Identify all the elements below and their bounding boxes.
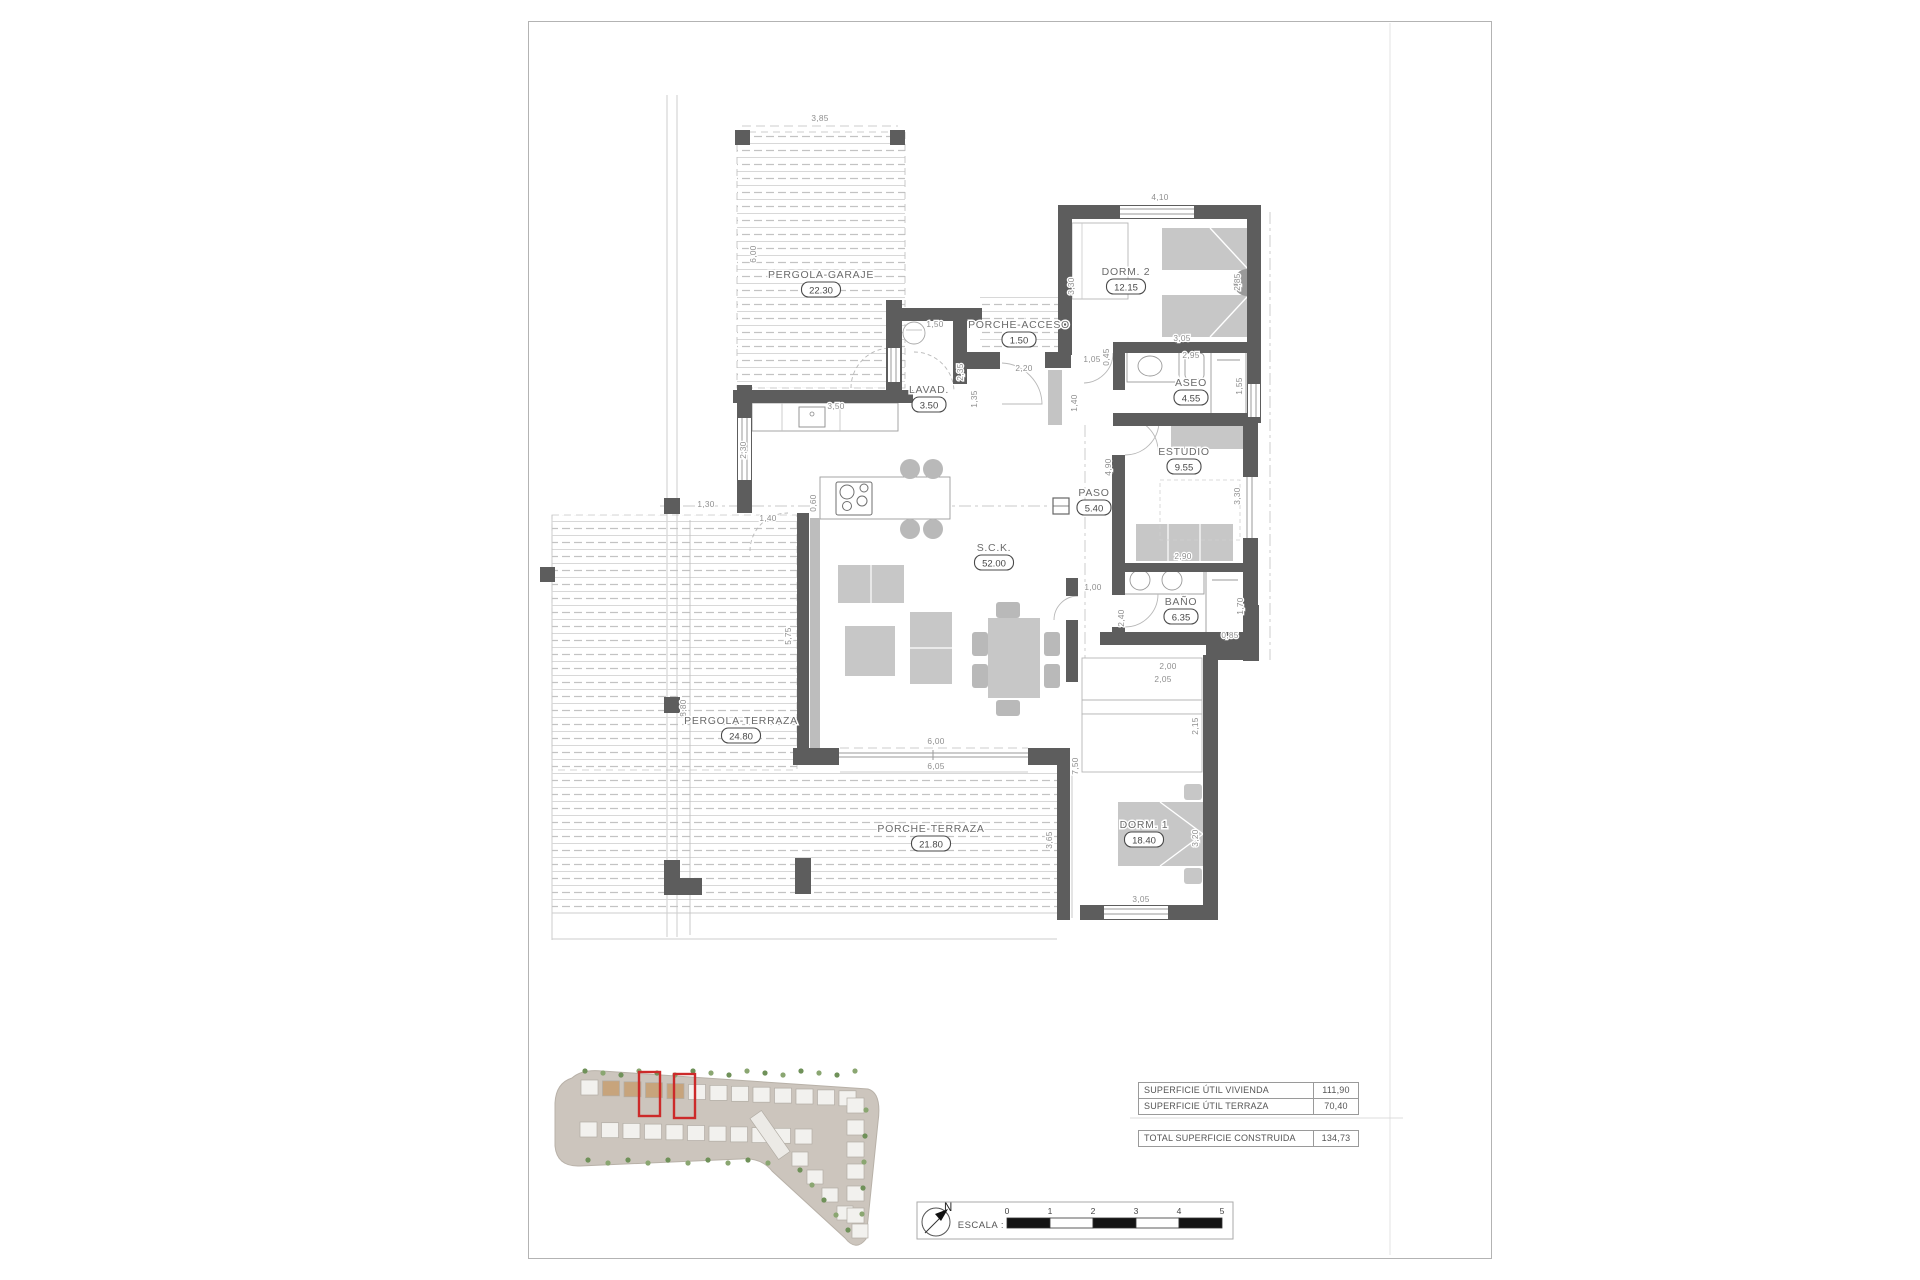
site-house [792,1152,808,1166]
room-name-label: BAÑO [1165,595,1198,608]
dimension-label: 2,00 [1159,661,1176,671]
room-area-label: 1.50 [1010,336,1029,347]
site-tree [816,1070,821,1075]
site-house [796,1089,813,1104]
dimension-label: 3,50 [827,401,844,411]
scale-bar-segment [1050,1218,1093,1228]
dimension-label: 3,20 [1190,829,1200,846]
room-area-label: 6.35 [1172,613,1191,624]
site-house [775,1088,792,1103]
site-house [807,1170,823,1184]
site-house [847,1142,864,1157]
site-tree [861,1159,866,1164]
dorm2-window [1120,206,1194,218]
lavad-window [888,348,900,382]
dimension-label: 1,40 [1069,394,1079,411]
dimension-label: 0,60 [808,494,818,511]
dimension-label: 1,50 [926,319,943,329]
dimension-label: 3,85 [811,113,828,123]
room-area-label: 4.55 [1182,394,1201,405]
dimension-label: 1,30 [697,499,714,509]
scale-tick-label: 0 [1005,1206,1010,1216]
hall-cabinet [1048,370,1062,425]
dimension-label: 1,40 [759,513,776,523]
site-house [852,1224,868,1238]
paso-shaft-symbol [1053,498,1069,514]
room-area-label: 3.50 [920,401,939,412]
site-tree [582,1068,587,1073]
site-tree [860,1185,865,1190]
scale-tick-label: 3 [1134,1206,1139,1216]
site-house [795,1129,812,1144]
table-row: SUPERFICIE ÚTIL VIVIENDA 111,90 [1139,1083,1358,1098]
room-area-label: 24.80 [729,732,753,743]
site-tree [745,1157,750,1162]
table-cell-label: SUPERFICIE ÚTIL VIVIENDA [1139,1083,1314,1098]
site-house [753,1087,770,1102]
site-house [689,1085,706,1100]
site-house [847,1098,864,1113]
site-house [581,1080,598,1095]
site-house [709,1126,726,1141]
dimension-label: 1,55 [1234,377,1244,394]
site-tree [625,1157,630,1162]
dimension-label: 1,35 [969,390,979,407]
dimension-label: 0,85 [1221,630,1238,640]
site-tree [762,1070,767,1075]
room-name-label: S.C.K. [977,542,1012,554]
site-tree [780,1072,785,1077]
total-area-table: TOTAL SUPERFICIE CONSTRUIDA 134,73 [1138,1130,1359,1147]
site-house [603,1081,620,1096]
site-house [645,1124,662,1139]
scale-label: ESCALA : [958,1220,1004,1231]
site-tree [585,1157,590,1162]
site-tree [809,1182,814,1187]
room-name-label: PORCHE-TERRAZA [877,823,984,835]
site-tree [852,1068,857,1073]
site-house [818,1090,835,1105]
dimension-label: 2,35 [955,363,965,380]
scale-tick-label: 1 [1048,1206,1053,1216]
table-row: SUPERFICIE ÚTIL TERRAZA 70,40 [1139,1098,1358,1114]
room-area-label: 5.40 [1085,504,1104,515]
room-name-label: ESTUDIO [1158,446,1210,458]
dimension-label: 0,45 [1101,348,1111,365]
site-tree [834,1072,839,1077]
kitchen-island [820,477,950,519]
dimension-label: 3,30 [1066,277,1076,294]
room-area-label: 12.15 [1114,283,1138,294]
scale-tick-label: 5 [1220,1206,1225,1216]
room-name-label: PORCHE-ACCESO [968,319,1070,331]
table-cell-label: TOTAL SUPERFICIE CONSTRUIDA [1139,1131,1314,1146]
site-plan [555,1068,879,1245]
title-block: N ESCALA : 012345 [917,1202,1233,1239]
room-name-label: PERGOLA-TERRAZA [684,715,798,727]
living-sofas [838,565,952,684]
dimension-label: 2,20 [1015,363,1032,373]
room-area-label: 52.00 [982,559,1006,570]
washing-machine [903,322,925,344]
site-tree [833,1212,838,1217]
dimension-label: 3,30 [1232,487,1242,504]
dimension-label: 6,05 [927,761,944,771]
room-name-label: DORM. 1 [1120,819,1169,831]
site-tree [859,1211,864,1216]
dimension-label: 2,05 [1154,674,1171,684]
room-name-label: PERGOLA-GARAJE [768,269,874,281]
site-tree [726,1072,731,1077]
site-tree [798,1068,803,1073]
table-cell-value: 70,40 [1314,1099,1358,1114]
dimension-label: 7,50 [1070,757,1080,774]
room-area-label: 22.30 [809,286,833,297]
room-name-label: DORM. 2 [1102,266,1151,278]
dimension-label: 1,70 [1235,597,1245,614]
dining-set [972,602,1060,716]
dimension-label: 2,90 [1174,551,1191,561]
site-tree [600,1070,605,1075]
site-house [580,1122,597,1137]
scale-tick-label: 4 [1177,1206,1182,1216]
north-label: N [944,1202,952,1214]
dimension-label: 1,00 [1084,582,1101,592]
site-tree [605,1160,610,1165]
site-house [688,1126,705,1141]
aseo-window [1248,384,1260,417]
site-tree [665,1157,670,1162]
site-tree [845,1227,850,1232]
dimension-label: 3,65 [1044,831,1054,848]
table-cell-value: 134,73 [1314,1131,1358,1146]
table-cell-label: SUPERFICIE ÚTIL TERRAZA [1139,1099,1314,1114]
site-tree [863,1107,868,1112]
site-tree [618,1072,623,1077]
dimension-label: 1,05 [1083,354,1100,364]
dimension-label: 2,85 [1232,273,1242,290]
floor-plan-svg: 3,856,001,502,351,352,203,502,301,050,45… [528,21,1492,1258]
site-tree [708,1070,713,1075]
scale-bar-segment [1093,1218,1136,1228]
site-tree [645,1160,650,1165]
site-house [847,1120,864,1135]
dorm1-closets [1082,658,1202,772]
room-name-label: PASO [1078,487,1109,499]
table-row: TOTAL SUPERFICIE CONSTRUIDA 134,73 [1139,1131,1358,1146]
room-name-label: ASEO [1175,377,1207,389]
site-tree [744,1068,749,1073]
site-house [666,1125,683,1140]
dorm2-beds [1072,223,1247,337]
room-name-label: LAVAD. [909,384,949,396]
dimension-label: 3,05 [1173,333,1190,343]
site-house [847,1164,864,1179]
dimension-label: 5,75 [783,627,793,644]
site-house [602,1123,619,1138]
dimension-label: 4,10 [1151,192,1168,202]
site-house [623,1123,640,1138]
site-tree [765,1160,770,1165]
site-house [732,1086,749,1101]
dimension-label: 2,15 [1190,717,1200,734]
scale-bar-segment [1136,1218,1179,1228]
area-summary-table: SUPERFICIE ÚTIL VIVIENDA 111,90 SUPERFIC… [1138,1082,1359,1115]
site-tree [705,1157,710,1162]
dimension-label: 2,30 [738,441,748,458]
table-cell-value: 111,90 [1314,1083,1358,1098]
room-area-label: 18.40 [1132,836,1156,847]
site-tree [862,1133,867,1138]
dimension-label: 3,05 [1132,894,1149,904]
dimension-label: 2,95 [1182,350,1199,360]
dimension-label: 4,90 [1103,458,1113,475]
site-tree [821,1197,826,1202]
room-area-label: 21.80 [919,840,943,851]
dorm1-window [1104,906,1168,919]
site-house [667,1084,684,1099]
site-house [710,1085,727,1100]
room-area-label: 9.55 [1175,463,1194,474]
kitchen-sink [799,407,825,427]
dimension-label: 6,00 [748,245,758,262]
living-south-glazing [839,750,1028,760]
dimension-label: 6,00 [927,736,944,746]
scale-bar-segment [1179,1218,1222,1228]
site-tree [797,1167,802,1172]
site-tree [685,1160,690,1165]
site-house [731,1127,748,1142]
scale-bar-segment [1007,1218,1050,1228]
terrace-slider-panel [810,518,820,748]
scale-tick-label: 2 [1091,1206,1096,1216]
dimension-label: 2,40 [1116,609,1126,626]
estudio-window [1244,477,1257,538]
site-tree [725,1160,730,1165]
